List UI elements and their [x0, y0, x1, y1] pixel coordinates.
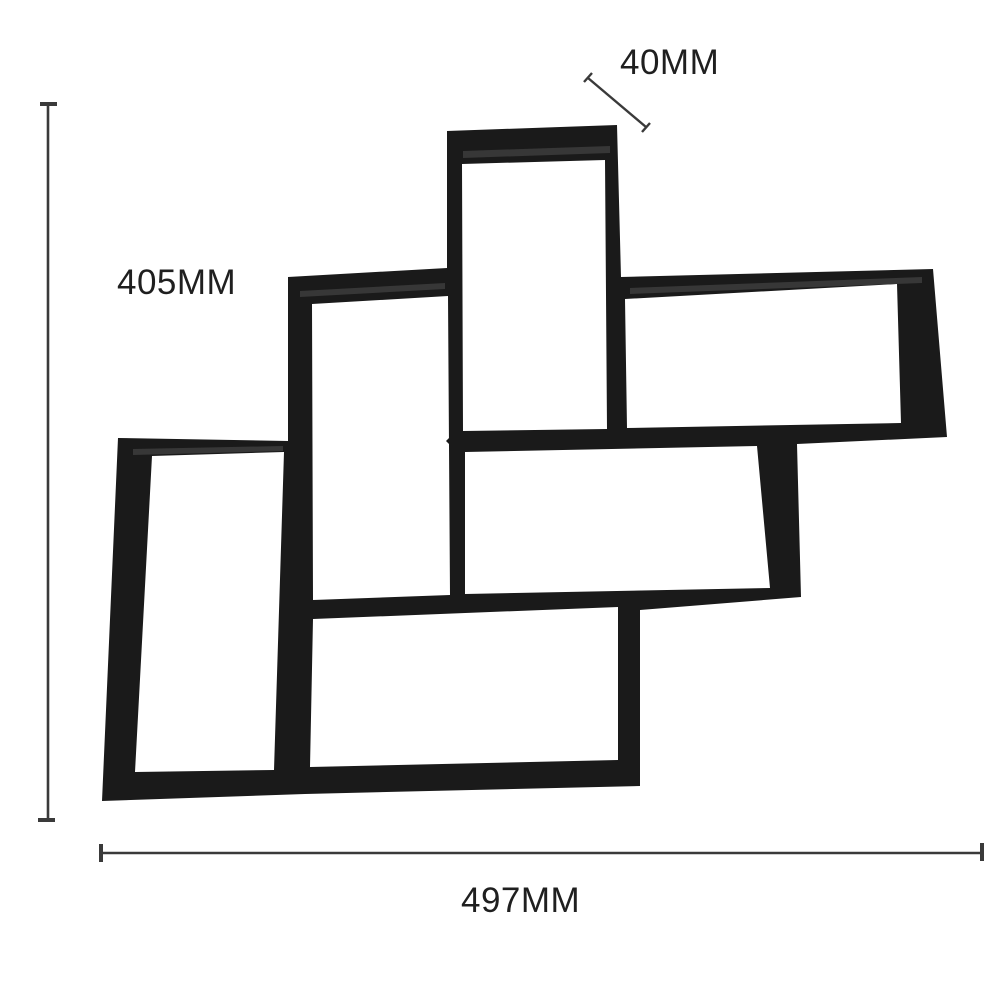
thickness-dimension-line — [588, 78, 646, 127]
height-dimension — [38, 104, 57, 820]
mold-body — [102, 125, 947, 801]
width-dimension — [101, 843, 982, 862]
width-label: 497MM — [461, 881, 580, 921]
height-label: 405MM — [117, 263, 236, 303]
thickness-label: 40MM — [620, 43, 719, 83]
product-dimension-image: 40MM 405MM 497MM — [0, 0, 1002, 1002]
paving-mold-photo — [0, 0, 1002, 1002]
